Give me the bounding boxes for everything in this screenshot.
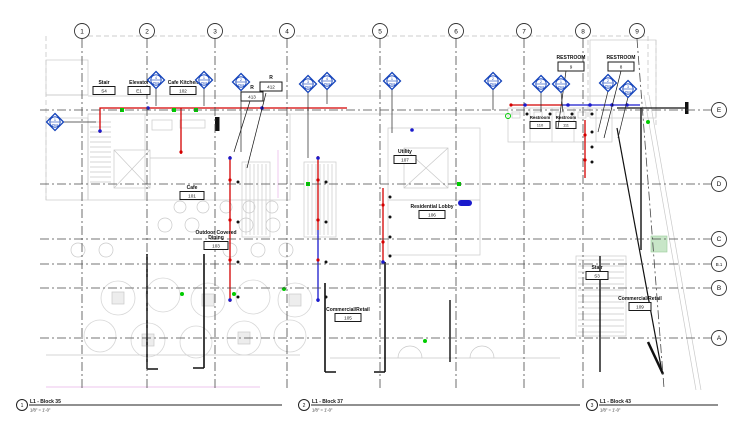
- grid-column-4: 4: [280, 24, 295, 389]
- room-tag-cafe-kitchen-102: Cafe Kitchen102: [168, 80, 199, 95]
- accent-lines: [46, 150, 278, 387]
- view-title-text: L1 - Block 43: [600, 399, 631, 405]
- view-title-l1-block-35: 1L1 - Block 351/8" = 1'-0": [17, 399, 283, 413]
- lobby-outline: [388, 128, 480, 255]
- grid-row-b: B: [40, 281, 727, 296]
- view-number: 2: [303, 403, 306, 409]
- fixture-number: 2: [540, 80, 542, 84]
- grid-label: C: [717, 236, 722, 243]
- view-number: 3: [591, 403, 594, 409]
- storefront-lines: [46, 355, 560, 358]
- keynote-label: RESTROOM: [607, 55, 636, 61]
- plan-canvas: 123456789EDCB.1BA StairS4ElevatorE1Cafe …: [0, 0, 753, 427]
- stair-mid-1-treads: [246, 164, 266, 235]
- grid-label: B: [717, 285, 721, 292]
- fixture-system-label: PS02: [490, 82, 497, 86]
- room-tag-residential-lobby-106: Residential Lobby106: [410, 204, 453, 219]
- keynote-r-413: R413: [234, 85, 263, 152]
- keynote-leader: [247, 93, 266, 168]
- view-number: 1: [21, 403, 24, 409]
- room-number: 101: [188, 194, 196, 199]
- keynote-number: 413: [248, 95, 256, 100]
- fixture-tag-3: 3PS02: [300, 76, 317, 159]
- room-name: Commercial/Retail: [326, 307, 370, 313]
- fixture-number: 1: [391, 77, 393, 81]
- room-tag-utility-107: Utility107: [394, 149, 416, 164]
- fixture-system-label: PS02: [538, 85, 545, 89]
- room-number: 106: [428, 213, 436, 218]
- fixture-system-label: PS02: [305, 85, 312, 89]
- elevator-x-west: [114, 150, 150, 188]
- fixture-system-label: PS02: [625, 90, 632, 94]
- fixture-number: 2: [492, 77, 494, 81]
- fixture-tag-1: 1PS02: [196, 72, 213, 107]
- storefront-mullions-2: [450, 108, 641, 372]
- fixture-tag-1: 1PS02: [47, 114, 64, 131]
- view-scale: 1/8" = 1'-0": [30, 408, 51, 413]
- keynote-label: RESTROOM: [557, 55, 586, 61]
- room-tag-commercial-retail-109: Commercial/Retail109: [618, 296, 662, 311]
- grid-column-7: 7: [517, 24, 532, 389]
- lobby-bench: [458, 200, 472, 206]
- fixture-tag-2: 2PS02: [598, 75, 617, 133]
- fixture-number: 1: [203, 76, 205, 80]
- room-name: Cafe: [187, 185, 198, 191]
- kitchen-counter-2: [180, 120, 205, 128]
- keynote-restroom-8: RESTROOM8: [604, 55, 635, 138]
- fixture-number: 4: [326, 77, 328, 81]
- fixture-number: 1: [54, 118, 56, 122]
- fixture-stem: [598, 91, 608, 132]
- room-name: Elevator: [129, 80, 149, 86]
- restroom-fixture-1: [512, 112, 520, 118]
- piping: [63, 105, 640, 302]
- grid-label: 1: [80, 29, 84, 36]
- blue-fittings: [98, 103, 629, 302]
- room-tag-stair-s4: StairS4: [93, 80, 115, 95]
- trees-and-planters: [84, 278, 312, 358]
- grid-label: E: [717, 107, 722, 114]
- grid-label: 3: [213, 29, 217, 36]
- room-name: Residential Lobby: [410, 204, 453, 210]
- grid-column-1: 1: [75, 24, 90, 389]
- room-name: Commercial/Retail: [618, 296, 662, 302]
- grid-label: A: [717, 335, 722, 342]
- fixture-system-label: PS02: [389, 82, 396, 86]
- storefront-arcs: [398, 346, 494, 358]
- room-name: Restroom: [556, 115, 577, 120]
- fixture-tag-3: 3PS02: [618, 81, 637, 139]
- room-number: 105: [344, 316, 352, 321]
- grid-label: 5: [378, 29, 382, 36]
- keynote-label: R: [250, 85, 254, 91]
- room-number: S4: [101, 89, 107, 94]
- grid-label: 4: [285, 29, 289, 36]
- room-tag-restroom-110: Restroom110: [530, 115, 551, 129]
- cafe-tables: [71, 201, 293, 257]
- room-name: Stair: [98, 80, 109, 86]
- view-title-l1-block-43: 3L1 - Block 431/8" = 1'-0": [587, 399, 719, 413]
- fixture-system-label: PS02: [153, 81, 160, 85]
- floor-plan-sheet: 123456789EDCB.1BA StairS4ElevatorE1Cafe …: [0, 0, 753, 427]
- fixture-tag-2: 2PS02: [233, 74, 250, 153]
- keynote-number: 9: [570, 65, 573, 70]
- fixture-tag-2: 2PS02: [485, 73, 502, 111]
- room-name: Cafe Kitchen: [168, 80, 199, 86]
- room-number: E1: [136, 89, 142, 94]
- stair-mid-2-treads: [308, 164, 332, 235]
- fixture-stem: [618, 97, 628, 138]
- grid-label: B.1: [716, 262, 723, 267]
- room-number: 111: [563, 123, 570, 128]
- room-name: Stair: [591, 265, 602, 271]
- view-title-text: L1 - Block 37: [312, 399, 343, 405]
- room-number: 109: [636, 305, 644, 310]
- fixture-number: 2: [240, 78, 242, 82]
- door-jamb-bar: [215, 117, 220, 131]
- fixture-tag-4: 4PS02: [319, 73, 336, 105]
- fixture-system-label: PS02: [558, 85, 565, 89]
- room-tag-stair-s3: StairS3: [586, 265, 608, 280]
- grid-label: D: [717, 181, 722, 188]
- fixture-system-label: PS02: [324, 82, 331, 86]
- supply-pipe-red: [100, 105, 585, 302]
- restroom-fixture-4: [578, 112, 586, 118]
- matchline-tick: [685, 102, 689, 114]
- kitchen-counter-1: [152, 120, 172, 130]
- room-number: 110: [537, 123, 544, 128]
- view-scale: 1/8" = 1'-0": [312, 408, 333, 413]
- fixture-number: 4: [155, 76, 157, 80]
- keynote-label: R: [269, 75, 273, 81]
- room-name: Dining: [208, 235, 224, 241]
- fixture-tag-2: 2PS02: [533, 76, 550, 113]
- view-title-text: L1 - Block 35: [30, 399, 61, 405]
- grid-column-8: 8: [576, 24, 591, 389]
- room-name: Restroom: [530, 115, 551, 120]
- view-scale: 1/8" = 1'-0": [600, 408, 621, 413]
- grid-column-9: 9: [630, 24, 665, 389]
- room-number: 107: [401, 158, 409, 163]
- grid-label: 9: [635, 29, 639, 36]
- fixture-system-label: PS02: [52, 123, 59, 127]
- grid-label: 8: [581, 29, 585, 36]
- grid-label: 2: [145, 29, 149, 36]
- fixture-number: 3: [627, 85, 629, 89]
- grid-label: 6: [454, 29, 458, 36]
- fixture-number: 1: [560, 80, 562, 84]
- view-title-l1-block-37: 2L1 - Block 371/8" = 1'-0": [299, 399, 581, 413]
- fixture-tag-1: 1PS02: [384, 73, 401, 134]
- room-name: Utility: [398, 149, 412, 155]
- room-tag-cafe-101: Cafe101: [180, 185, 204, 200]
- room-tag-commercial-retail-105: Commercial/Retail105: [326, 307, 370, 322]
- room-number: 103: [212, 244, 220, 249]
- heavy-wall-lines: [147, 102, 689, 374]
- keynote-number: 8: [620, 65, 623, 70]
- fixture-number: 2: [607, 79, 609, 83]
- room-number: 102: [179, 89, 187, 94]
- keynote-number: 412: [267, 85, 275, 90]
- room-number: S3: [594, 274, 600, 279]
- fixture-system-label: PS02: [201, 81, 208, 85]
- grid-label: 7: [522, 29, 526, 36]
- fixture-system-label: PS02: [605, 84, 612, 88]
- room-tag-elevator-e1: ElevatorE1: [128, 80, 150, 95]
- fixture-number: 3: [307, 80, 309, 84]
- fixture-system-label: PS02: [238, 83, 245, 87]
